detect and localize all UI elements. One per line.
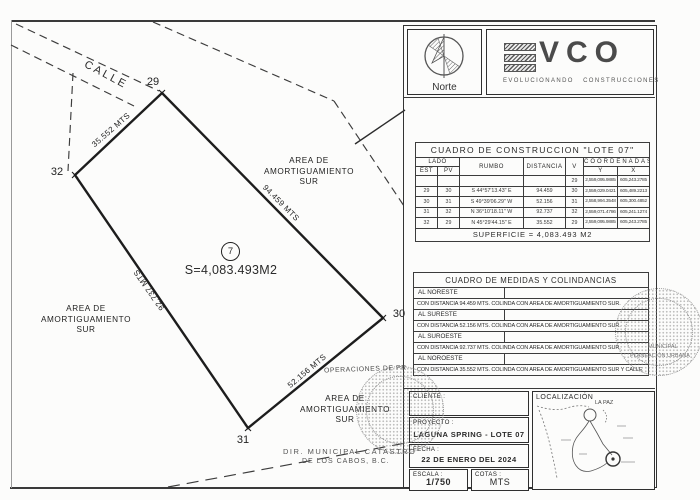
planeacion-seal-text: MUNICIPAL: [648, 344, 678, 350]
fecha-box: FECHA : 22 DE ENERO DEL 2024: [409, 444, 529, 468]
fecha-value: 22 DE ENERO DEL 2024: [410, 455, 528, 464]
col-header-distancia: DISTANCIA: [524, 158, 566, 176]
col-header-v: V: [566, 158, 584, 176]
evco-e-bars-icon: [504, 43, 536, 75]
cotas-box: COTAS : MTS: [471, 469, 529, 491]
catastro-seal-icon: [356, 366, 444, 454]
vertex-label-31: 31: [237, 434, 249, 446]
localizacion-box: LOCALIZACIÓN LA PAZ: [532, 391, 655, 490]
colindancia-heading: AL SURESTE: [413, 310, 649, 321]
table-row: 3229 N 45°29'44.15" E35.552 292,559,095.…: [416, 218, 650, 229]
column-divider: [403, 97, 655, 98]
escala-value: 1/750: [410, 477, 467, 487]
colindancia-detail: CON DISTANCIA 52.156 MTS. COLINDA CON AR…: [413, 321, 649, 333]
catastro-stamp-line2: DE LOS CABOS, B.C.: [302, 458, 390, 465]
colindancias-table: CUADRO DE MEDIDAS Y COLINDANCIAS AL NORE…: [413, 272, 649, 376]
construction-table-title: CUADRO DE CONSTRUCCION "LOTE 07": [416, 143, 650, 158]
construction-table: CUADRO DE CONSTRUCCION "LOTE 07" LADO RU…: [415, 142, 649, 242]
colindancia-heading: AL NORESTE: [413, 288, 649, 299]
vertex-label-32: 32: [51, 166, 63, 178]
plan-sheet: CALLE 29 32 30 31 35.552 MTS 94.459 MTS …: [0, 0, 700, 500]
north-box: Norte: [407, 29, 482, 95]
col-header-est: EST: [416, 167, 438, 176]
table-row: 3132 N 36°10'18.11" W92.737 322,559,071.…: [416, 207, 650, 218]
table-row: 3031 S 49°39'06.29" W52.156 312,558,994.…: [416, 197, 650, 208]
cotas-value: MTS: [472, 477, 528, 487]
col-header-y: Y: [584, 167, 618, 176]
vertex-label-29: 29: [147, 76, 159, 88]
superficie-label: SUPERFICIE = 4,083.493 M2: [416, 228, 650, 241]
north-label: Norte: [408, 82, 481, 93]
titleblock-divider: [403, 388, 655, 389]
colindancia-detail: CON DISTANCIA 94.459 MTS. COLINDA CON AR…: [413, 299, 649, 311]
col-header-rumbo: RUMBO: [460, 158, 524, 176]
planeacion-seal-icon: [615, 288, 700, 376]
colindancia-detail: CON DISTANCIA 92.737 MTS. COLINDA CON AR…: [413, 343, 649, 355]
buffer-area-label-right: AREA DE AMORTIGUAMIENTO SUR: [264, 156, 354, 188]
col-header-pv: PV: [438, 167, 460, 176]
catastro-stamp-line1: DIR. MUNICIPAL CATASTRO: [283, 447, 416, 456]
evco-wordmark: VCO: [539, 38, 625, 68]
colindancia-heading: AL SUROESTE: [413, 332, 649, 343]
lot-area-label: S=4,083.493M2: [185, 263, 278, 277]
colindancia-detail: CON DISTANCIA 35.552 MTS. COLINDA CON AR…: [413, 365, 649, 377]
evco-logo-box: VCO EVOLUCIONANDO CONSTRUCCIONES: [486, 29, 654, 95]
col-header-x: X: [618, 167, 650, 176]
table-row: 292,559,095.9885 605,243.2785: [416, 176, 650, 187]
lot-number-badge: 7: [221, 242, 240, 261]
escala-box: ESCALA : 1/750: [409, 469, 468, 491]
table-row: 2930 S 44°57'13.43" E94.459 302,559,029.…: [416, 186, 650, 197]
buffer-area-label-left: AREA DE AMORTIGUAMIENTO SUR: [41, 304, 131, 336]
col-header-coordenadas: COORDENADAS: [584, 158, 650, 167]
col-header-lado: LADO: [416, 158, 460, 167]
planeacion-seal-text2: PLANEACIÓN URBANA: [630, 353, 690, 359]
adjacent-lot-line: [355, 110, 405, 144]
evco-tagline: EVOLUCIONANDO CONSTRUCCIONES: [503, 78, 660, 84]
localizacion-map: [533, 392, 654, 489]
colindancia-heading: AL NOROESTE: [413, 354, 649, 365]
colindancias-title: CUADRO DE MEDIDAS Y COLINDANCIAS: [413, 272, 649, 288]
